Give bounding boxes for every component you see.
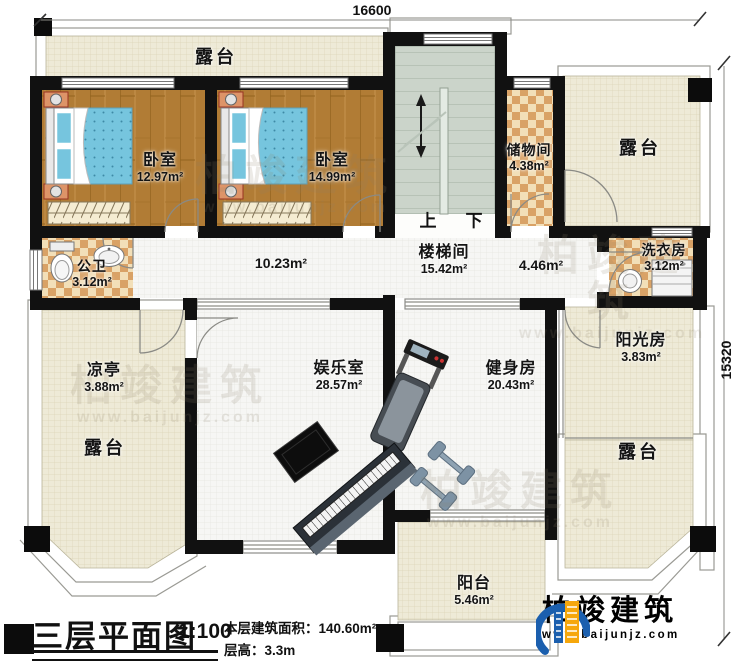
room-label-bedroom2: 卧室 14.99m² [309, 152, 356, 184]
room-label-terrace-top: 露台 [195, 47, 237, 67]
room-label-gym: 健身房 20.43m² [485, 360, 536, 392]
floor-plan-canvas: 16600 15320 柏竣建筑www.baijunjz.com 柏竣建筑www… [0, 0, 750, 672]
laundry-sink [619, 270, 642, 293]
logo-mark-icon [536, 597, 590, 657]
room-label-terrace-right-bottom: 露台 [618, 442, 660, 462]
floor-height-line: 层高：3.3m [224, 639, 295, 659]
room-label-pavilion: 凉亭 3.88m² [84, 362, 124, 394]
bedroom1-furniture [44, 92, 132, 224]
room-label-terrace-right-top: 露台 [619, 138, 661, 158]
bed [221, 108, 307, 184]
room-label-laundry: 洗衣房 3.12m² [642, 243, 687, 273]
room-label-stairwell: 楼梯间 15.42m² [418, 244, 469, 276]
room-label-bathroom: 公卫 3.12m² [72, 259, 112, 289]
bed [46, 108, 132, 184]
stairs-up-label: 上 [420, 207, 437, 232]
company-logo: 柏竣建筑 www.baijunjz.com [536, 597, 680, 641]
room-label-bedroom1: 卧室 12.97m² [137, 152, 184, 184]
bedroom2-furniture [219, 92, 311, 224]
area-label-hall-west: 10.23m² [255, 256, 307, 272]
stairs-down-label: 下 [466, 207, 483, 232]
wardrobe [48, 202, 130, 224]
room-floors [42, 36, 700, 620]
room-label-entertainment: 娱乐室 28.57m² [313, 360, 364, 392]
building-area-line: 本层建筑面积：140.60m² [224, 617, 376, 637]
room-label-balcony: 阳台 5.46m² [454, 575, 494, 607]
title-underline [32, 650, 218, 661]
area-label-hall-east: 4.46m² [519, 258, 563, 274]
room-label-storage: 储物间 4.38m² [507, 143, 552, 173]
toilet [50, 242, 74, 282]
dimension-right: 15320 [718, 341, 734, 380]
wardrobe [223, 202, 311, 224]
room-label-terrace-left: 露台 [84, 438, 126, 458]
sunroom-floor [565, 307, 693, 440]
room-label-sunroom: 阳光房 3.83m² [615, 332, 666, 364]
dimension-top: 16600 [353, 2, 392, 18]
